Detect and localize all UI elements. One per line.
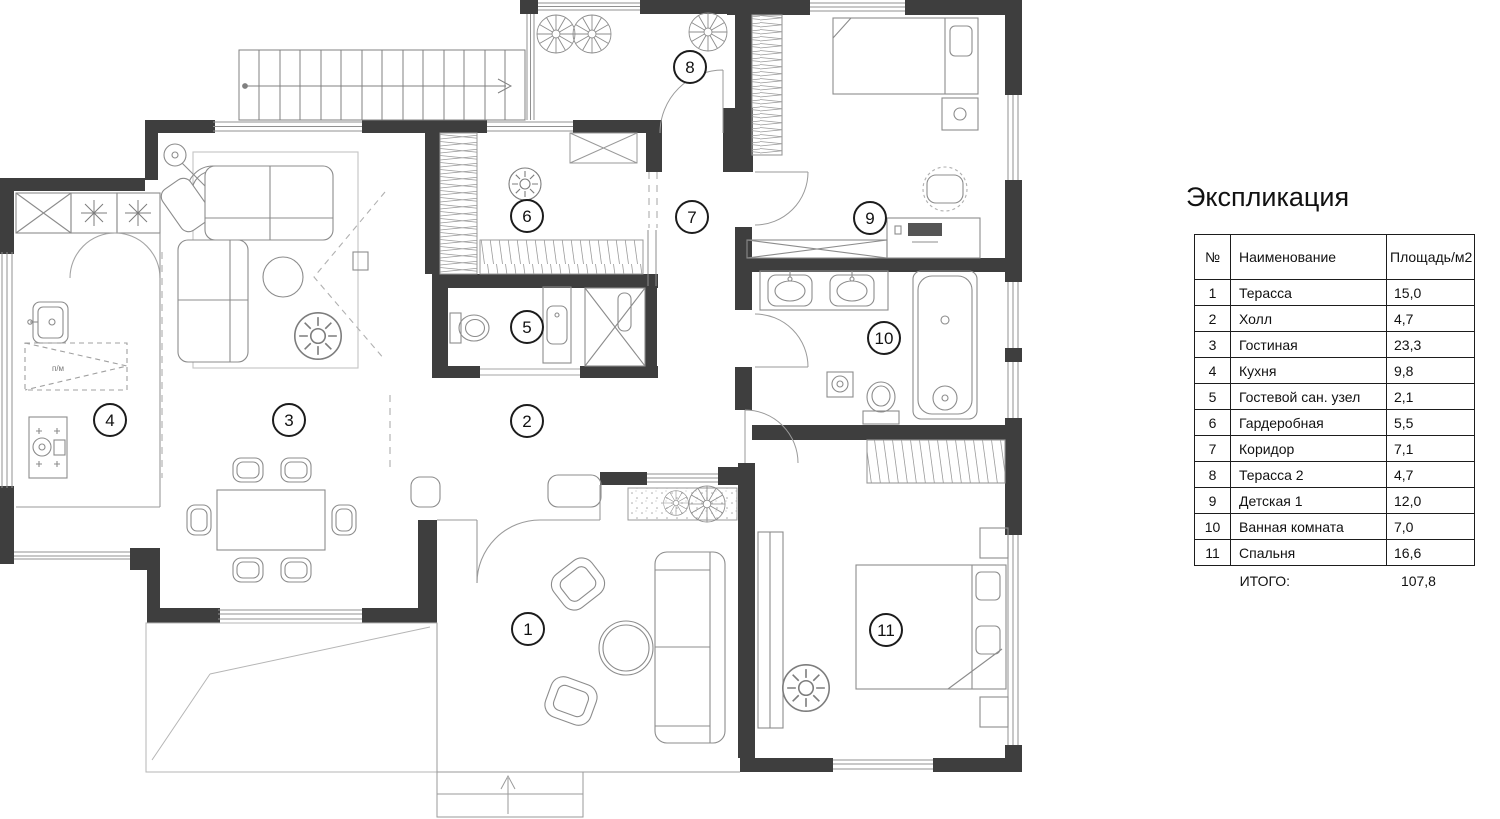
ceiling-light-icon: [295, 313, 341, 359]
table-row: 8 Терасса 2 4,7: [1195, 462, 1475, 488]
bathroom-fixtures: [760, 271, 977, 424]
row-num: 9: [1195, 488, 1231, 514]
table-row: 6 Гардеробная 5,5: [1195, 410, 1475, 436]
outdoor-armchair: [546, 553, 610, 616]
room-marker-4: 4: [94, 404, 126, 436]
row-num: 6: [1195, 410, 1231, 436]
plant-icon: [537, 15, 575, 53]
room-marker-3: 3: [273, 404, 305, 436]
room-marker-6: 6: [511, 200, 543, 232]
row-num: 3: [1195, 332, 1231, 358]
row-num: 7: [1195, 436, 1231, 462]
wardrobe-room: [440, 133, 643, 274]
stove-icon: [29, 417, 67, 478]
kitchen-furniture: [16, 193, 160, 507]
explication-table: № Наименование Площадь/м2 1 Терасса 15,0…: [1194, 234, 1475, 566]
row-area: 15,0: [1387, 280, 1475, 306]
washing-machine-icon: [827, 372, 853, 397]
plant-icon: [689, 486, 725, 522]
svg-text:10: 10: [875, 329, 894, 348]
row-name: Гостевой сан. узел: [1231, 384, 1387, 410]
explication-title: Экспликация: [1186, 182, 1488, 213]
dishwasher-icon: [25, 343, 127, 390]
dining-set: [187, 458, 356, 582]
row-num: 11: [1195, 540, 1231, 566]
clothes-rail: [752, 15, 782, 155]
dishwasher-label: п/м: [52, 364, 64, 373]
row-name: Коридор: [1231, 436, 1387, 462]
kitchen-sink-icon: [28, 302, 68, 343]
desk-chair: [923, 167, 967, 211]
table-row: 5 Гостевой сан. узел 2,1: [1195, 384, 1475, 410]
svg-text:5: 5: [522, 318, 531, 337]
row-area: 7,0: [1387, 514, 1475, 540]
kitchen-hob-icon: [71, 193, 160, 233]
toilet-icon: [863, 382, 899, 424]
total-label: ИТОГО:: [1232, 573, 1394, 589]
svg-text:8: 8: [685, 58, 694, 77]
row-name: Гардеробная: [1231, 410, 1387, 436]
row-area: 4,7: [1387, 306, 1475, 332]
explication-panel: Экспликация № Наименование Площадь/м2 1 …: [1186, 182, 1488, 589]
floor-plan-svg: п/м: [0, 0, 1060, 819]
terrace2-plants: [537, 13, 727, 53]
room-marker-2: 2: [511, 405, 543, 437]
svg-text:11: 11: [877, 621, 895, 640]
clothes-rail: [440, 133, 477, 274]
deck-terrace: [146, 623, 740, 772]
toilet-icon: [450, 313, 489, 343]
column-header-name: Наименование: [1231, 235, 1387, 280]
column-header-area: Площадь/м2: [1387, 235, 1475, 280]
row-num: 1: [1195, 280, 1231, 306]
nightstand: [942, 98, 978, 130]
table-row: 4 Кухня 9,8: [1195, 358, 1475, 384]
pouf: [263, 257, 303, 297]
outdoor-armchair: [541, 673, 600, 729]
clothes-rail: [867, 440, 1005, 483]
row-name: Холл: [1231, 306, 1387, 332]
corner-sofa: [178, 166, 333, 362]
room-marker-10: 10: [868, 322, 900, 354]
wall-shelf: [747, 240, 887, 258]
row-num: 8: [1195, 462, 1231, 488]
svg-text:7: 7: [687, 208, 696, 227]
plant-icon: [573, 15, 611, 53]
coffee-table: [603, 625, 649, 671]
table-row: 7 Коридор 7,1: [1195, 436, 1475, 462]
nightstand: [980, 528, 1008, 558]
entrance-door: [477, 520, 540, 583]
row-name: Кухня: [1231, 358, 1387, 384]
shower-icon: [585, 288, 645, 366]
bench: [548, 475, 601, 507]
table-header-row: № Наименование Площадь/м2: [1195, 235, 1475, 280]
table-row: 1 Терасса 15,0: [1195, 280, 1475, 306]
room-marker-8: 8: [674, 51, 706, 83]
nightstand: [980, 697, 1008, 727]
row-area: 9,8: [1387, 358, 1475, 384]
row-num: 4: [1195, 358, 1231, 384]
column-header-num: №: [1195, 235, 1231, 280]
svg-text:1: 1: [523, 620, 532, 639]
tall-cabinet: [758, 532, 783, 728]
room-marker-9: 9: [854, 202, 886, 234]
sink-icon: [830, 271, 874, 306]
row-area: 2,1: [1387, 384, 1475, 410]
ceiling-light-icon: [509, 168, 541, 200]
floor-plan-page: п/м: [0, 0, 1500, 819]
staircase: [239, 50, 525, 120]
svg-text:2: 2: [522, 412, 531, 431]
single-bed: [833, 18, 978, 94]
plant-icon: [664, 491, 689, 516]
outdoor-sofa: [655, 552, 725, 743]
stair-direction-arrow: [243, 79, 511, 93]
kitchen-tall-cabinet: [16, 193, 71, 233]
vanity-counter: [760, 271, 888, 310]
row-area: 4,7: [1387, 462, 1475, 488]
planter-box: [628, 486, 737, 522]
table-row: 10 Ванная комната 7,0: [1195, 514, 1475, 540]
living-room-furniture: [158, 144, 385, 582]
row-area: 7,1: [1387, 436, 1475, 462]
svg-text:6: 6: [522, 207, 531, 226]
room-marker-7: 7: [676, 201, 708, 233]
bathroom-door: [755, 314, 808, 367]
row-name: Терасса 2: [1231, 462, 1387, 488]
shelf-unit: [570, 133, 637, 163]
room-marker-11: 11: [870, 614, 902, 646]
terrace-furniture: [541, 552, 725, 743]
table-row: 2 Холл 4,7: [1195, 306, 1475, 332]
plant-icon: [689, 13, 727, 51]
table-row: 9 Детская 1 12,0: [1195, 488, 1475, 514]
desk: [887, 218, 980, 258]
bathtub-icon: [913, 271, 977, 419]
row-name: Гостиная: [1231, 332, 1387, 358]
kidsroom-door: [755, 172, 808, 225]
entrance-porch: [437, 772, 583, 817]
svg-text:4: 4: [105, 411, 114, 430]
row-num: 2: [1195, 306, 1231, 332]
coffee-table: [599, 621, 653, 675]
row-area: 5,5: [1387, 410, 1475, 436]
ceiling-light-icon: [783, 665, 829, 711]
row-area: 12,0: [1387, 488, 1475, 514]
wc-sink-icon: [543, 287, 571, 363]
stool: [411, 477, 440, 507]
row-name: Ванная комната: [1231, 514, 1387, 540]
clothes-rail: [480, 240, 643, 274]
row-num: 5: [1195, 384, 1231, 410]
svg-text:3: 3: [284, 411, 293, 430]
bedroom-furniture: [758, 440, 1008, 728]
totals-row: ИТОГО: 107,8: [1194, 573, 1488, 589]
sink-icon: [768, 271, 812, 306]
row-num: 10: [1195, 514, 1231, 540]
row-name: Детская 1: [1231, 488, 1387, 514]
total-value: 107,8: [1394, 573, 1488, 589]
kitchen-cabinet-doors: [70, 233, 160, 278]
row-name: Спальня: [1231, 540, 1387, 566]
room-marker-1: 1: [512, 613, 544, 645]
row-area: 23,3: [1387, 332, 1475, 358]
svg-text:9: 9: [865, 209, 874, 228]
row-area: 16,6: [1387, 540, 1475, 566]
entrance-arrow: [501, 776, 515, 814]
guest-wc-fixtures: [450, 287, 645, 375]
row-name: Терасса: [1231, 280, 1387, 306]
table-row: 11 Спальня 16,6: [1195, 540, 1475, 566]
room-marker-5: 5: [511, 311, 543, 343]
table-row: 3 Гостиная 23,3: [1195, 332, 1475, 358]
